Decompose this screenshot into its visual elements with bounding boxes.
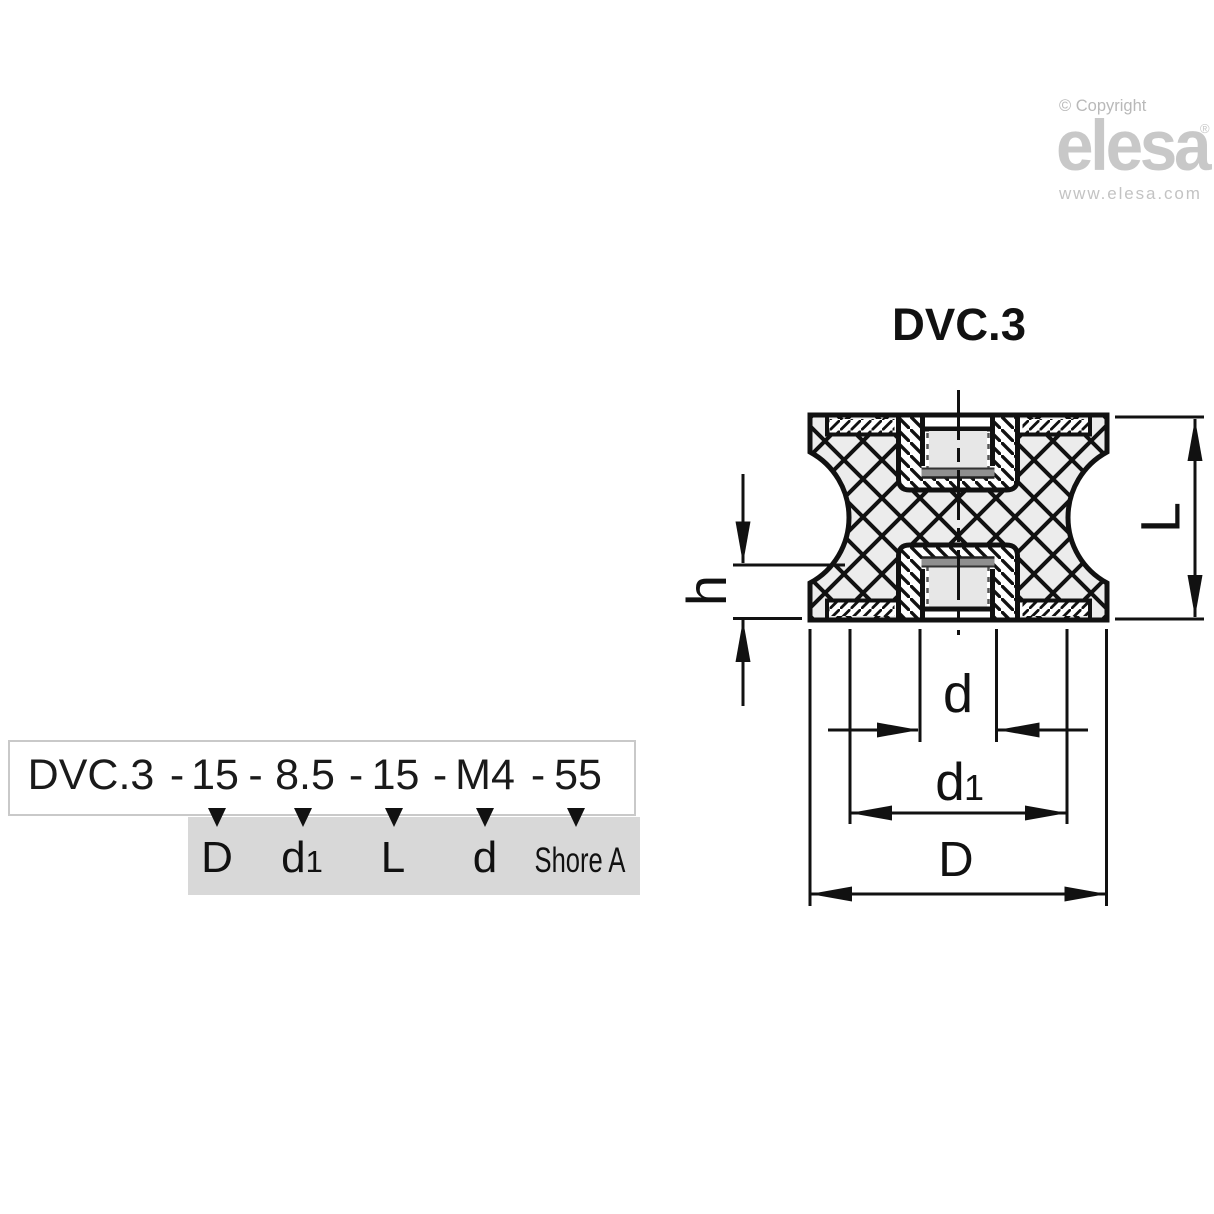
svg-text:d: d (943, 664, 973, 724)
svg-text:DVC.3: DVC.3 (892, 299, 1026, 350)
svg-text:L: L (1129, 502, 1192, 533)
svg-text:h: h (675, 575, 738, 606)
svg-text:d: d (935, 753, 964, 812)
svg-text:1: 1 (964, 767, 984, 808)
svg-text:D: D (938, 833, 973, 887)
